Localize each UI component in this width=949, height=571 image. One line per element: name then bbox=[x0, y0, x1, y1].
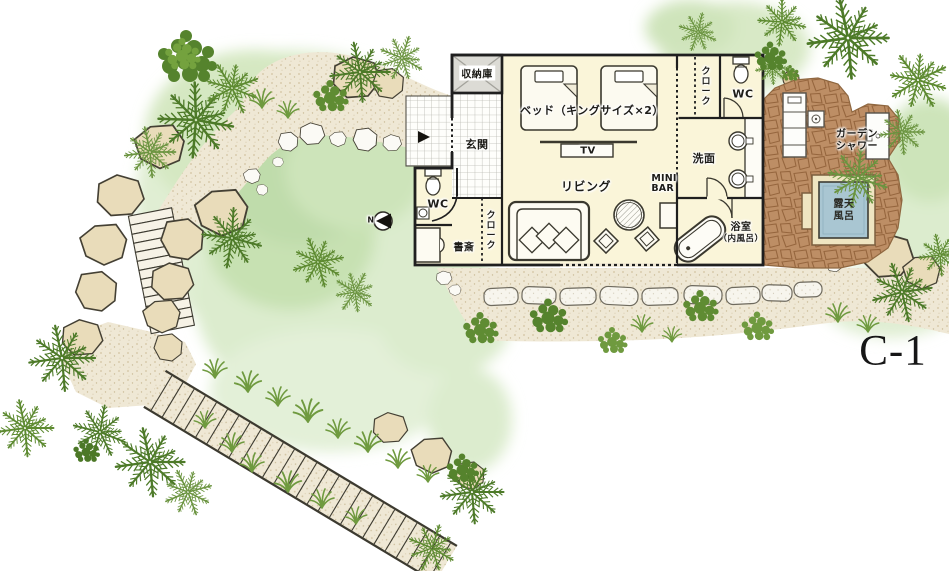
label-minibar: MINIBAR bbox=[651, 174, 676, 194]
plan-graphics bbox=[0, 0, 949, 571]
floor-plan-canvas: 収納庫 玄関 ベッド（キングサイズ×2） TV リビング MINIBAR WC … bbox=[0, 0, 949, 571]
label-cloak-left: クローク bbox=[487, 211, 496, 251]
label-bed: ベッド（キングサイズ×2） bbox=[520, 102, 664, 118]
study-desk bbox=[415, 228, 444, 262]
toilet-right-icon bbox=[733, 57, 749, 83]
minibar-counter bbox=[660, 203, 677, 228]
label-wc-left: WC bbox=[427, 198, 448, 211]
round-table bbox=[614, 200, 644, 230]
label-study: 書斎 bbox=[454, 239, 475, 254]
label-garden-shower: ガーデンシャワー bbox=[836, 129, 878, 153]
sofa bbox=[509, 202, 589, 260]
label-storage: 収納庫 bbox=[459, 66, 495, 81]
label-living: リビング bbox=[561, 178, 611, 195]
vanity-counter bbox=[745, 118, 763, 198]
label-washroom: 洗面 bbox=[693, 150, 716, 166]
label-tv: TV bbox=[580, 146, 596, 157]
label-bathroom: 浴室（内風呂） bbox=[718, 222, 763, 244]
label-cloak-right: クローク bbox=[702, 67, 711, 107]
label-open-air-bath: 露天風呂 bbox=[834, 199, 855, 223]
label-wc-right: WC bbox=[732, 88, 753, 101]
label-north: N bbox=[367, 216, 374, 225]
label-entrance: 玄関 bbox=[466, 136, 489, 152]
unit-label: C-1 bbox=[859, 327, 927, 376]
bed-king-1 bbox=[521, 66, 577, 130]
north-compass-icon bbox=[374, 212, 392, 230]
bed-king-2 bbox=[601, 66, 657, 130]
deck-tiles bbox=[406, 96, 452, 166]
toilet-left-icon bbox=[425, 169, 441, 195]
